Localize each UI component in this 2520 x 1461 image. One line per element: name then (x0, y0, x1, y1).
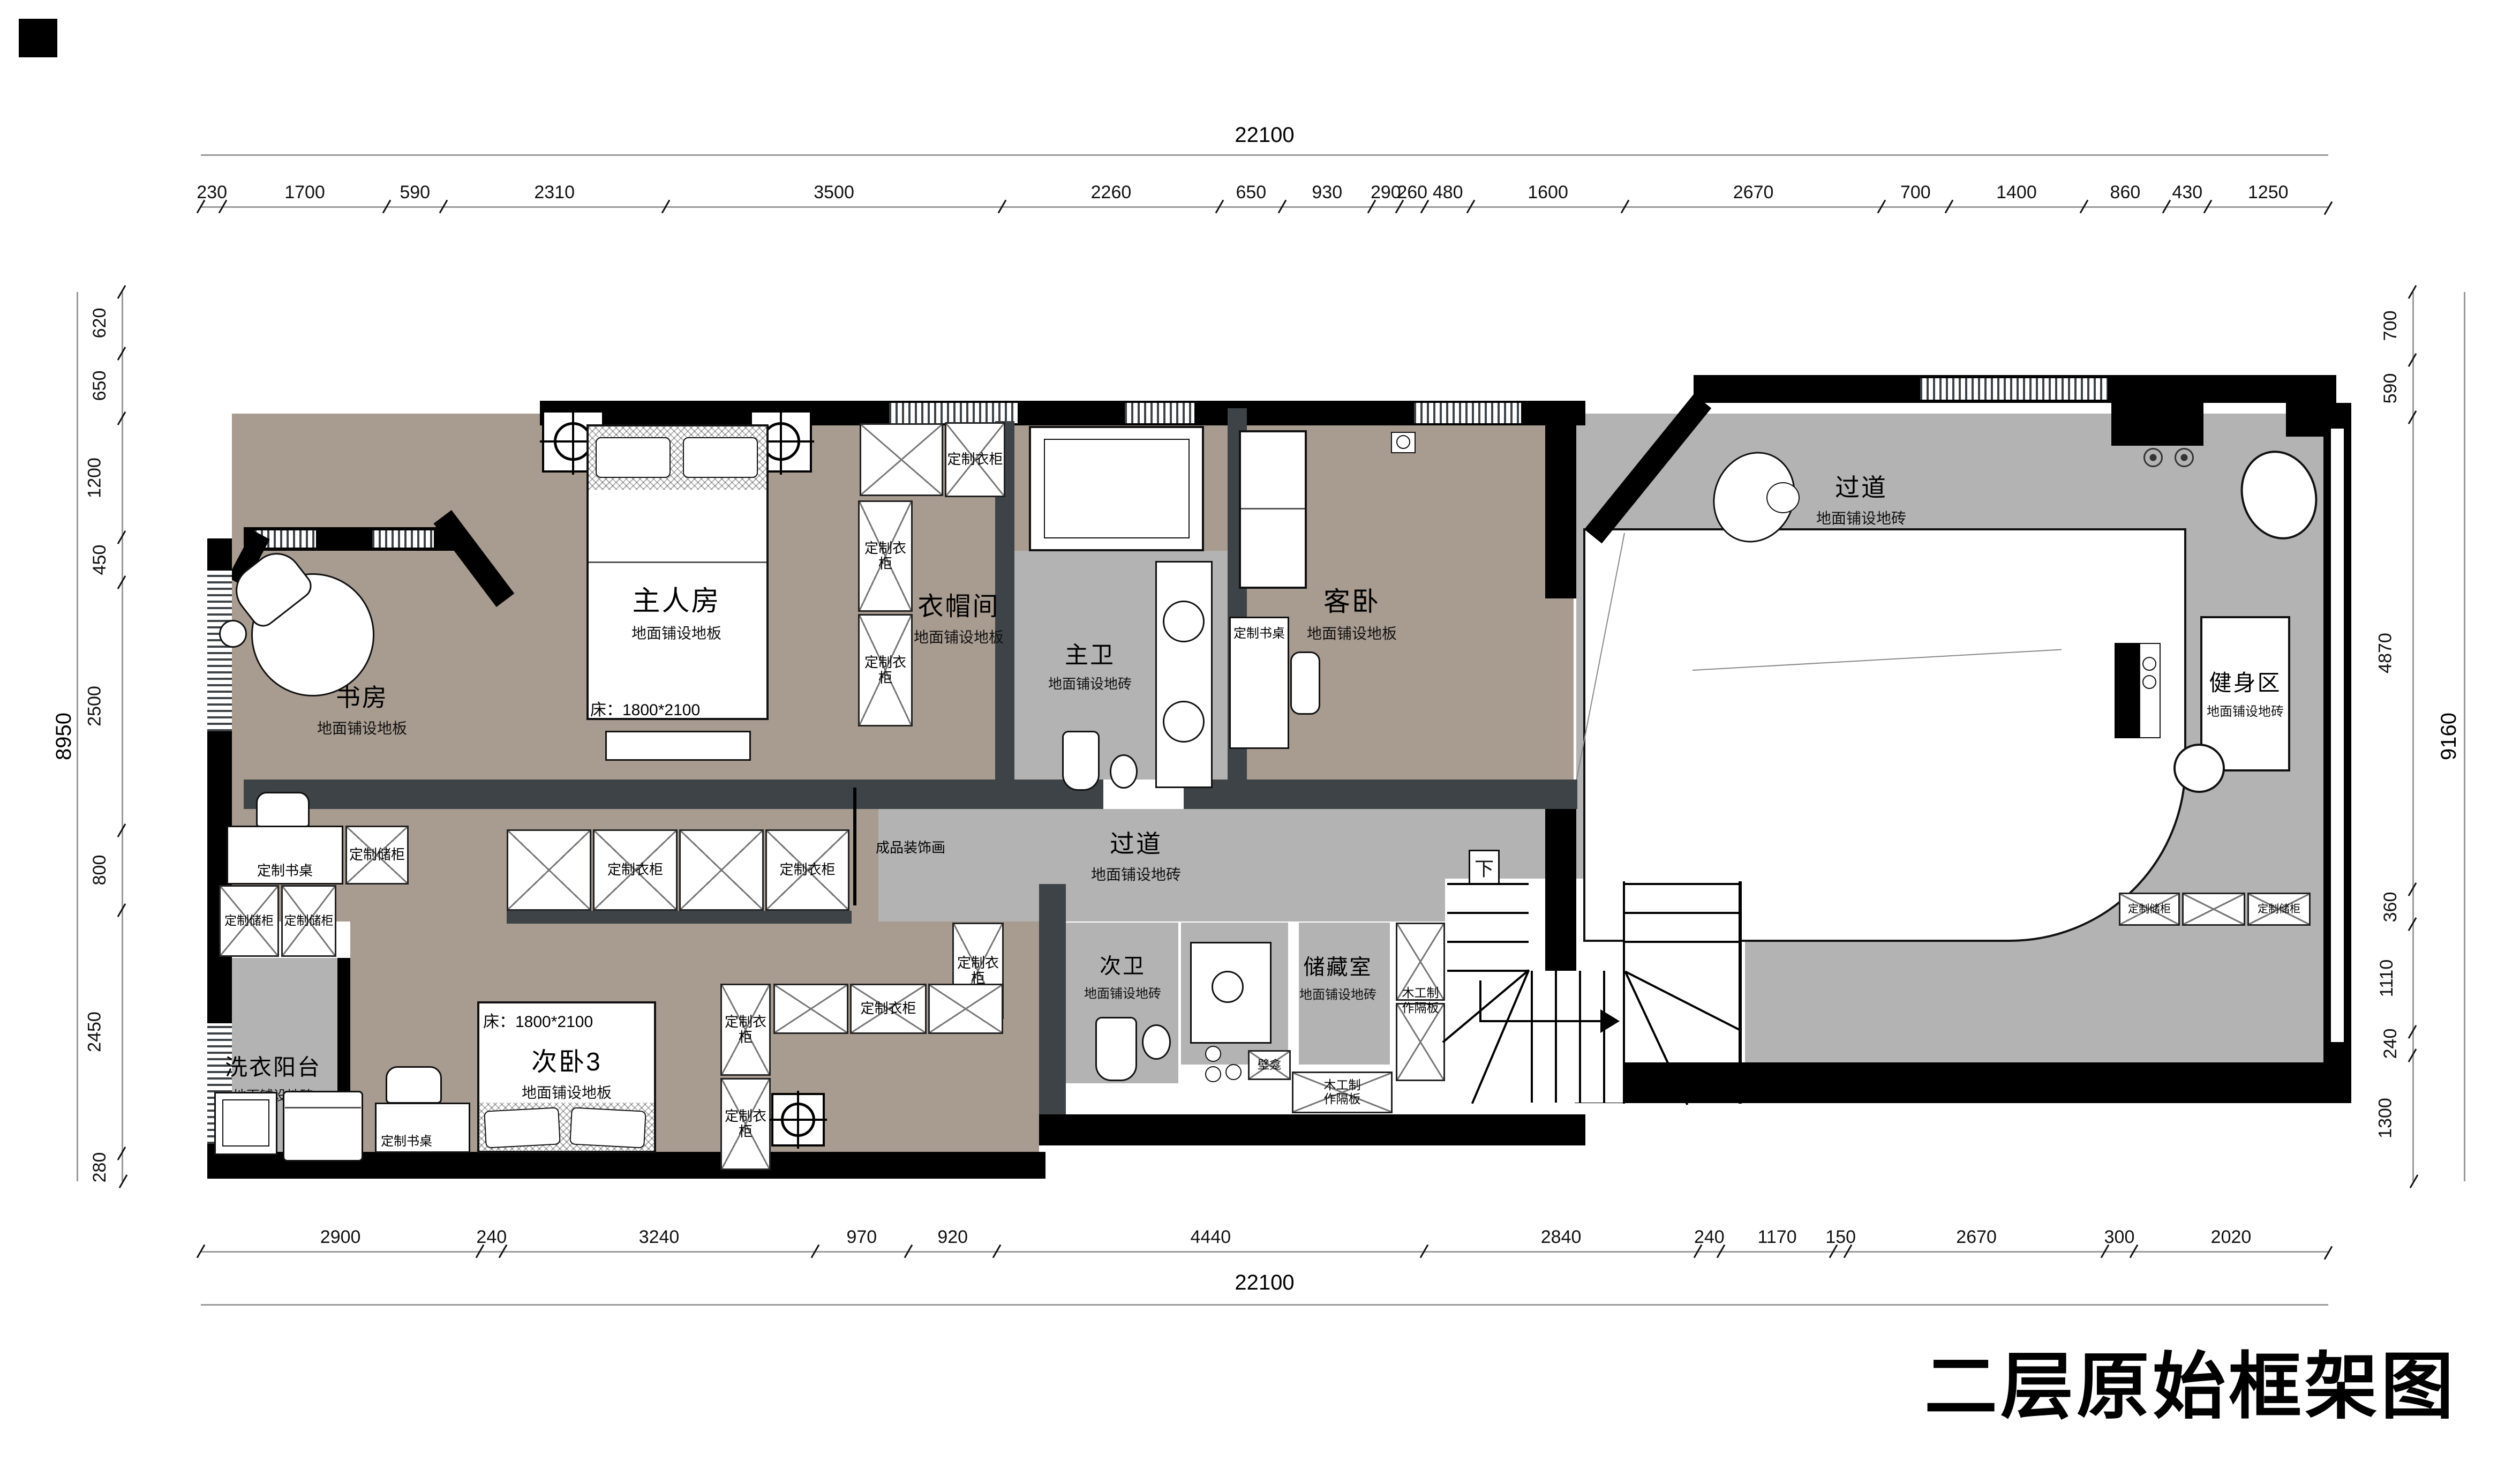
dim-segment: 430 (2167, 180, 2208, 208)
dim-value: 1200 (85, 458, 106, 498)
dim-top-segments: 2301700590231035002260650930290260480160… (201, 180, 2328, 208)
dim-segment: 590 (387, 180, 443, 208)
stool-second-bath (1142, 1024, 1171, 1060)
dim-segment: 1110 (2386, 924, 2414, 1032)
dim-segment: 860 (2084, 180, 2167, 208)
cabinet-label: 定制衣柜 (860, 655, 911, 686)
dim-segment: 2500 (95, 582, 123, 831)
dim-value: 2670 (1956, 1227, 1997, 1248)
room-floor: 地面铺设地板 (914, 626, 1004, 647)
sink-2 (1163, 701, 1205, 743)
guest-appliance-dial (1396, 435, 1410, 449)
bed3-wardrobe-top-3 (679, 829, 764, 911)
cabinet-label: 定制衣柜 (860, 541, 911, 572)
bed3-desk: 定制书桌 (375, 1103, 470, 1153)
toilet-second (1095, 1017, 1137, 1081)
bed3-pillow-1 (484, 1107, 560, 1148)
bed3-wardrobe-h1 (773, 984, 848, 1034)
dim-segment: 2450 (95, 910, 123, 1153)
room-name: 储藏室 (1299, 950, 1376, 981)
dim-segment: 3240 (503, 1225, 815, 1253)
dim-bottom-total: 22100 (201, 1271, 2328, 1295)
dim-value: 360 (2380, 891, 2401, 922)
room-label-master: 主人房 地面铺设地板 (631, 579, 721, 643)
dim-left-total-line (77, 292, 78, 1181)
dim-value: 2310 (534, 182, 575, 203)
void-opening (1583, 528, 2186, 942)
dim-value: 620 (89, 308, 110, 338)
shower-drain (1212, 971, 1244, 1003)
dim-value: 300 (2104, 1227, 2135, 1248)
room-name: 书房 (317, 678, 407, 714)
dim-value: 240 (1694, 1227, 1725, 1248)
study-desk: 定制书桌 (227, 826, 343, 885)
window-left-1 (207, 571, 232, 731)
room-name: 主卫 (1048, 636, 1132, 670)
wall-wing-block (2111, 394, 2203, 446)
toilet-master (1062, 731, 1100, 791)
dim-bottom-total-line (201, 1304, 2328, 1306)
washing-machine (283, 1091, 363, 1162)
bed3-desk-label: 定制书桌 (381, 1130, 432, 1149)
dim-segment: 240 (480, 1225, 503, 1253)
dim-value: 430 (2172, 182, 2202, 203)
stairs-arrow-stub (1479, 980, 1481, 1022)
basin-3 (1205, 1066, 1221, 1082)
art-wall-bar (853, 788, 856, 905)
dim-segment: 360 (2386, 889, 2414, 924)
bed3-wardrobe-top-4: 定制衣柜 (765, 829, 849, 911)
plant-icon-1 (2143, 448, 2163, 467)
gym-counter-wall (2115, 643, 2139, 738)
study-side-table (219, 620, 247, 648)
room-floor: 地面铺设地砖 (2207, 701, 2284, 720)
room-floor: 地面铺设地砖 (1048, 673, 1132, 693)
stairs-arrow-shaft (1479, 1020, 1604, 1022)
partition-label: 木工制作隔板 (1321, 1078, 1364, 1106)
dim-value: 700 (1900, 182, 1931, 203)
guest-desk: 定制书桌 (1229, 617, 1289, 749)
guest-sofa-line (1241, 508, 1305, 510)
dim-segment: 650 (1220, 180, 1282, 208)
dim-value: 2500 (85, 686, 106, 727)
dim-value: 2020 (2211, 1227, 2252, 1248)
window-top-3 (1414, 403, 1521, 423)
column-marker-bed3 (771, 1093, 825, 1147)
wall-strip-bottom (507, 911, 852, 924)
master-bench (605, 731, 751, 761)
room-label-corridor-top: 过道 地面铺设地砖 (1816, 468, 1906, 528)
wall-guest-right-upper (1545, 403, 1576, 598)
dim-segment: 700 (2386, 292, 2414, 360)
bed3-wardrobe-v2: 定制衣柜 (720, 1078, 771, 1170)
room-name: 过道 (1091, 825, 1181, 860)
cabinet-label: 定制储柜 (284, 914, 334, 928)
vanity (1155, 561, 1213, 788)
dim-segment: 260 (1400, 180, 1425, 208)
master-pillow-2 (683, 437, 758, 478)
plant-icon-2 (2175, 448, 2194, 467)
partition-horizontal: 木工制作隔板 (1292, 1072, 1393, 1113)
dim-segment: 300 (2105, 1225, 2134, 1253)
dim-value: 1250 (2248, 182, 2289, 203)
bed3-wardrobe-top-1 (507, 829, 591, 911)
stairs-arrow-head (1600, 1009, 1620, 1033)
room-name: 洗衣阳台 (225, 1050, 321, 1082)
dim-value: 2840 (1541, 1227, 1582, 1248)
dim-segment: 4440 (997, 1225, 1424, 1253)
cabinet-label: 定制衣柜 (722, 1014, 769, 1045)
window-wing-top (1920, 378, 2108, 400)
window-top-2 (1125, 403, 1194, 423)
dim-value: 860 (2110, 182, 2141, 203)
dim-segment: 1400 (1949, 180, 2084, 208)
cabinet-label: 定制衣柜 (947, 452, 1003, 467)
bed3-pillow-2 (569, 1107, 646, 1148)
dim-tick (197, 1245, 206, 1258)
cabinet-label: 定制储柜 (349, 847, 405, 863)
person-figure-head (1766, 482, 1800, 513)
sink-1 (1163, 601, 1205, 642)
dim-value: 1700 (284, 182, 325, 203)
window-right-strip (2331, 429, 2344, 1042)
dim-value: 450 (89, 544, 110, 575)
dim-value: 970 (846, 1227, 877, 1248)
bed3-wardrobe-top-2: 定制衣柜 (593, 829, 678, 911)
window-study-top-2 (372, 530, 434, 548)
cabinet-label: 定制储柜 (2258, 903, 2300, 915)
dim-left-total: 8950 (52, 713, 76, 760)
dim-value: 2450 (85, 1012, 106, 1052)
basin-2 (1225, 1064, 1242, 1080)
dim-value: 1300 (2375, 1098, 2396, 1139)
basin-1 (1205, 1046, 1221, 1062)
room-name: 健身区 (2207, 665, 2284, 698)
partition-vertical-label: 木工制作隔板 (1398, 986, 1443, 1015)
floor-plan-canvas: 22100 2301700590231035002260650930290260… (0, 0, 2520, 1461)
dim-segment: 2260 (1002, 180, 1220, 208)
gym-cabinet-1: 定制储柜 (2119, 893, 2180, 926)
dim-segment: 4870 (2386, 417, 2414, 890)
dim-value: 480 (1433, 182, 1463, 203)
room-label-storage: 储藏室 地面铺设地砖 (1299, 950, 1376, 1003)
room-label-master-bath: 主卫 地面铺设地砖 (1048, 636, 1132, 693)
room-label-bed3: 次卧3 地面铺设地板 (522, 1040, 612, 1103)
dim-segment: 2020 (2134, 1225, 2328, 1253)
study-chair (256, 792, 310, 827)
dim-segment: 1300 (2386, 1055, 2414, 1181)
stairs-flight-left (1447, 883, 1529, 973)
art-label: 成品装饰画 (876, 837, 945, 857)
dim-value: 290 (1371, 182, 1401, 203)
dim-segment: 2670 (1848, 1225, 2105, 1253)
dim-segment: 240 (1698, 1225, 1721, 1253)
dim-segment: 920 (908, 1225, 997, 1253)
guest-sofa (1239, 430, 1307, 589)
guest-desk-label: 定制书桌 (1233, 623, 1285, 641)
dim-value: 1110 (2376, 959, 2397, 997)
drawing-title: 二层原始框架图 (1907, 1328, 2474, 1433)
washer-panel-line (285, 1107, 361, 1108)
dim-value: 650 (89, 371, 110, 401)
study-desk-label: 定制书桌 (257, 860, 313, 880)
dim-segment: 1600 (1471, 180, 1624, 208)
cloak-cabinet-top-1 (860, 423, 943, 496)
laundry-sink-basin (222, 1099, 269, 1147)
cabinet-label: 定制衣柜 (860, 1001, 916, 1016)
dim-value: 2260 (1091, 182, 1132, 203)
gym-cabinet-3: 定制储柜 (2247, 893, 2311, 926)
dim-value: 920 (937, 1227, 968, 1248)
stairs-down-label: 下 (1475, 853, 1494, 881)
cabinet-label: 定制衣柜 (722, 1108, 769, 1140)
dim-value: 4870 (2375, 633, 2396, 674)
gym-counter-knob-1 (2142, 657, 2156, 671)
study-storage-cabinet: 定制储柜 (345, 826, 409, 885)
room-label-guest: 客卧 地面铺设地板 (1307, 580, 1397, 643)
bed3-wardrobe-v1: 定制衣柜 (720, 984, 771, 1076)
dim-segment: 3500 (666, 180, 1003, 208)
room-name: 客卧 (1307, 580, 1397, 619)
room-label-study: 书房 地面铺设地板 (317, 678, 407, 738)
niche-label: 壁龛 (1258, 1059, 1281, 1072)
master-pillow-1 (596, 437, 671, 478)
dim-segment: 2310 (443, 180, 666, 208)
dim-segment: 1700 (223, 180, 386, 208)
bed3-wardrobe-h3 (928, 984, 1003, 1034)
dim-segment: 480 (1425, 180, 1471, 208)
dim-value: 4440 (1191, 1227, 1231, 1248)
dim-segment: 230 (201, 180, 223, 208)
laundry-cabinet-2: 定制储柜 (281, 885, 336, 957)
wall-bottom-right (1575, 1062, 2351, 1103)
cloak-cabinet-2: 定制衣柜 (858, 614, 913, 726)
dim-value: 590 (400, 182, 430, 203)
dim-segment: 290 (1372, 180, 1400, 208)
corner-mark (19, 19, 57, 57)
dim-segment: 590 (2386, 360, 2414, 417)
dim-segment: 150 (1833, 1225, 1848, 1253)
dim-segment: 620 (95, 292, 123, 354)
cabinet-label: 定制衣柜 (779, 862, 835, 878)
dim-right-segments: 700590487036011102401300 (2386, 292, 2414, 1181)
wall-corridor-top (244, 780, 1577, 809)
dim-segment: 450 (95, 537, 123, 582)
dim-top-total: 22100 (201, 123, 2328, 147)
dim-value: 1400 (1996, 182, 2037, 203)
room-floor: 地面铺设地板 (1307, 622, 1397, 643)
dim-value: 260 (1397, 182, 1427, 203)
wall-bottom-mid (1039, 1114, 1585, 1145)
dim-value: 1170 (1758, 1227, 1797, 1248)
dim-value: 3500 (814, 182, 854, 203)
stairs-flight-mid (1531, 971, 1623, 1103)
cabinet-label: 定制储柜 (224, 914, 274, 928)
room-name: 主人房 (631, 579, 721, 619)
room-name: 衣帽间 (914, 585, 1004, 623)
niche: 壁龛 (1248, 1050, 1291, 1080)
dim-top-total-line (201, 154, 2328, 156)
dim-tick (117, 285, 126, 299)
gym-stool (2173, 744, 2225, 793)
dim-value: 240 (2380, 1029, 2401, 1059)
room-floor: 地面铺设地板 (522, 1081, 612, 1103)
cloak-cabinet-top-2: 定制衣柜 (945, 422, 1005, 497)
dim-segment: 1170 (1721, 1225, 1833, 1253)
dim-segment: 240 (2386, 1032, 2414, 1055)
dim-segment: 970 (815, 1225, 908, 1253)
cloak-cabinet-1: 定制衣柜 (858, 500, 913, 612)
room-floor: 地面铺设地砖 (1091, 863, 1181, 885)
room-label-corridor-mid: 过道 地面铺设地砖 (1091, 825, 1181, 885)
dim-right-total-line (2464, 292, 2465, 1181)
stool-master-bath (1110, 754, 1138, 789)
cabinet-label: 定制衣柜 (607, 862, 663, 878)
dim-segment: 2840 (1424, 1225, 1697, 1253)
master-bed-line (589, 561, 766, 563)
dim-value: 590 (2380, 373, 2401, 404)
dim-value: 930 (1312, 182, 1342, 203)
room-floor: 地面铺设地砖 (1084, 983, 1161, 1002)
room-label-second-bath: 次卫 地面铺设地砖 (1084, 949, 1161, 1002)
dim-segment: 700 (1882, 180, 1949, 208)
dim-value: 240 (476, 1227, 507, 1248)
window-top-1 (889, 403, 1018, 423)
dim-left-segments: 620650120045025008002450280 (95, 292, 123, 1181)
cabinet-label: 定制衣柜 (954, 955, 1002, 986)
room-floor: 地面铺设地板 (631, 622, 721, 643)
laundry-cabinet-1: 定制储柜 (219, 885, 279, 957)
dim-segment: 1200 (95, 418, 123, 538)
room-name: 过道 (1816, 468, 1906, 504)
dim-tick (2408, 285, 2417, 299)
bed3-note: 床：1800*2100 (483, 1008, 593, 1032)
stairs-flight-right (1625, 883, 1740, 970)
dim-segment: 800 (95, 830, 123, 910)
dim-right-total: 9160 (2437, 713, 2461, 760)
dim-segment: 930 (1282, 180, 1372, 208)
dim-segment: 650 (95, 354, 123, 418)
stairs-wall-1 (1623, 881, 1625, 1104)
dim-value: 2900 (320, 1227, 361, 1248)
dim-value: 650 (1236, 182, 1266, 203)
room-label-gym: 健身区 地面铺设地砖 (2207, 665, 2284, 720)
dim-value: 2670 (1733, 182, 1774, 203)
master-bed-note: 床：1800*2100 (590, 696, 700, 720)
dim-value: 800 (89, 855, 110, 886)
dim-value: 3240 (639, 1227, 680, 1248)
room-label-cloak: 衣帽间 地面铺设地板 (914, 585, 1004, 647)
bed3-wardrobe-h2: 定制衣柜 (850, 984, 927, 1034)
dim-segment: 2670 (1625, 180, 1882, 208)
room-floor: 地面铺设地砖 (1816, 507, 1906, 528)
dim-segment: 2900 (201, 1225, 480, 1253)
room-floor: 地面铺设地砖 (1299, 984, 1376, 1003)
dim-value: 700 (2380, 311, 2401, 341)
gym-counter-knob-2 (2142, 675, 2156, 689)
dim-segment: 1250 (2208, 180, 2328, 208)
room-name: 次卫 (1084, 949, 1161, 980)
dim-bottom-segments: 2900240324097092044402840240117015026703… (201, 1225, 2328, 1253)
stairs-down-box: 下 (1469, 850, 1500, 885)
bed3-chair (386, 1066, 442, 1104)
room-name: 次卧3 (522, 1040, 612, 1078)
room-floor: 地面铺设地板 (317, 717, 407, 738)
stairs-wall-2 (1739, 881, 1742, 1104)
dim-value: 1600 (1528, 182, 1568, 203)
gym-cabinet-2 (2182, 893, 2245, 926)
dim-value: 280 (89, 1152, 110, 1183)
wall-secondbath-left (1039, 884, 1066, 1114)
cabinet-label: 定制储柜 (2128, 903, 2171, 915)
bathtub-inner (1044, 439, 1190, 538)
guest-chair (1290, 651, 1320, 715)
dim-segment: 280 (95, 1153, 123, 1181)
